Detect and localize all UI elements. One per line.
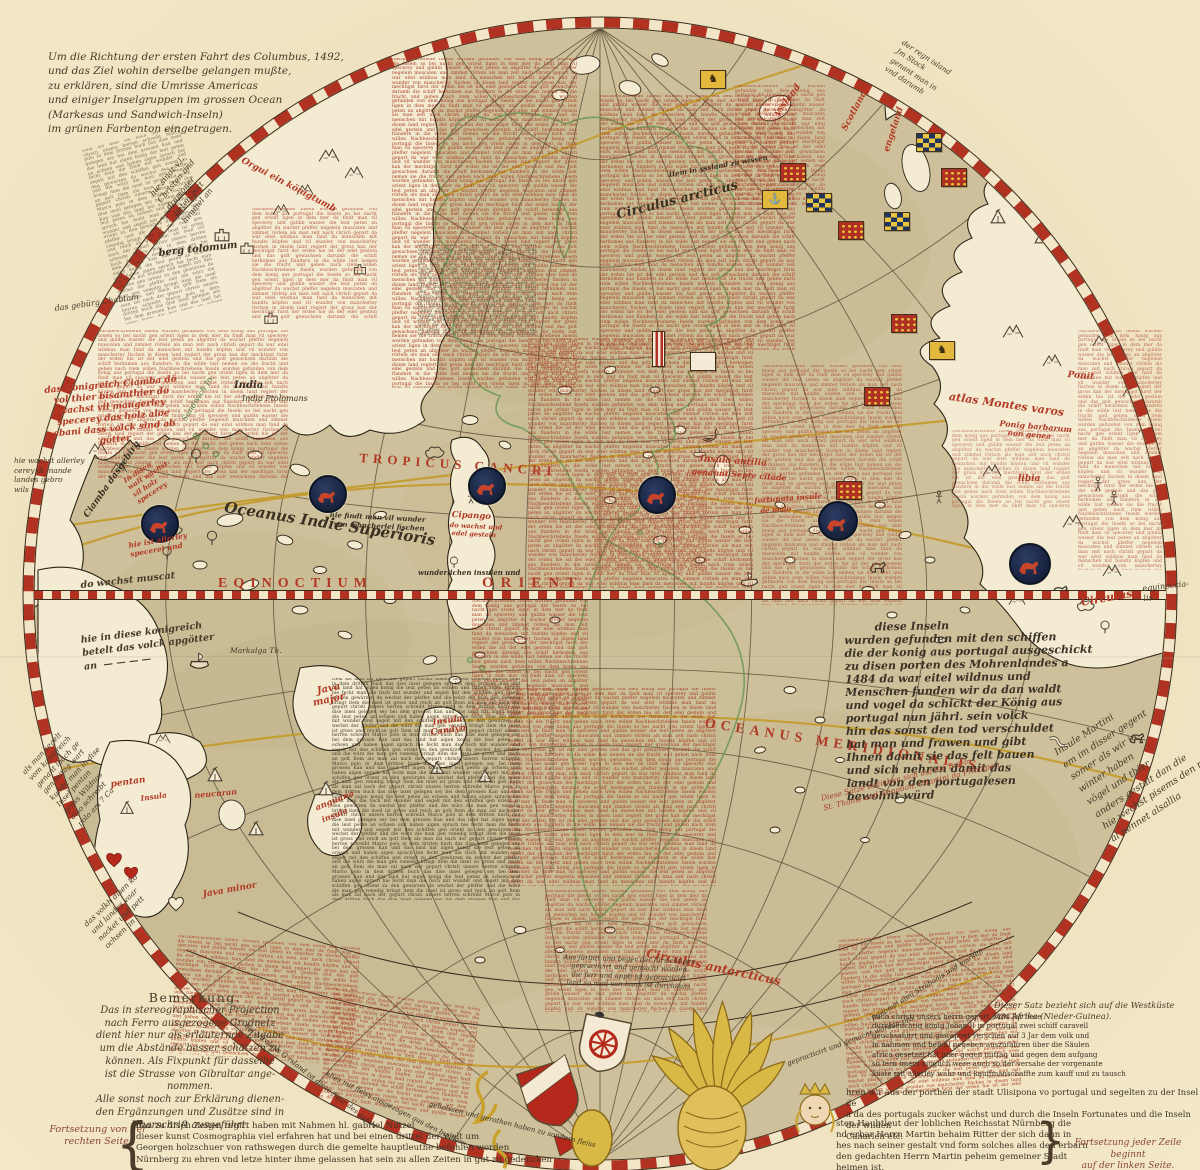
island (795, 787, 805, 793)
island (314, 567, 327, 574)
island (784, 687, 796, 694)
island (514, 927, 526, 934)
island (605, 927, 615, 933)
land-java-major (293, 666, 370, 751)
island (770, 827, 780, 833)
island (875, 502, 885, 508)
island (895, 797, 905, 803)
island (861, 838, 870, 843)
island (292, 606, 308, 614)
island (449, 677, 461, 684)
island (695, 557, 705, 563)
island (785, 557, 795, 563)
island (887, 612, 897, 618)
gold-orb (572, 1110, 612, 1166)
island (475, 652, 485, 658)
island (836, 758, 845, 763)
island (925, 557, 935, 563)
equator-checkered-band (34, 590, 1166, 600)
island (462, 416, 478, 425)
map-canvas (0, 0, 1200, 1170)
island (550, 617, 560, 623)
tent-sketch-icon (1125, 289, 1137, 301)
island (935, 637, 946, 643)
land-cipango (447, 437, 495, 629)
island (844, 477, 856, 484)
island (739, 527, 751, 534)
island (248, 451, 262, 459)
island (475, 957, 485, 963)
island (556, 948, 565, 953)
land-candyn (419, 707, 467, 768)
island (328, 501, 342, 509)
island (552, 90, 568, 100)
island (809, 527, 821, 534)
behaim-globe-map-page: Nachbeschriebene Inseln wurden gefunden … (0, 0, 1200, 1170)
island (193, 561, 207, 569)
island (815, 717, 825, 723)
